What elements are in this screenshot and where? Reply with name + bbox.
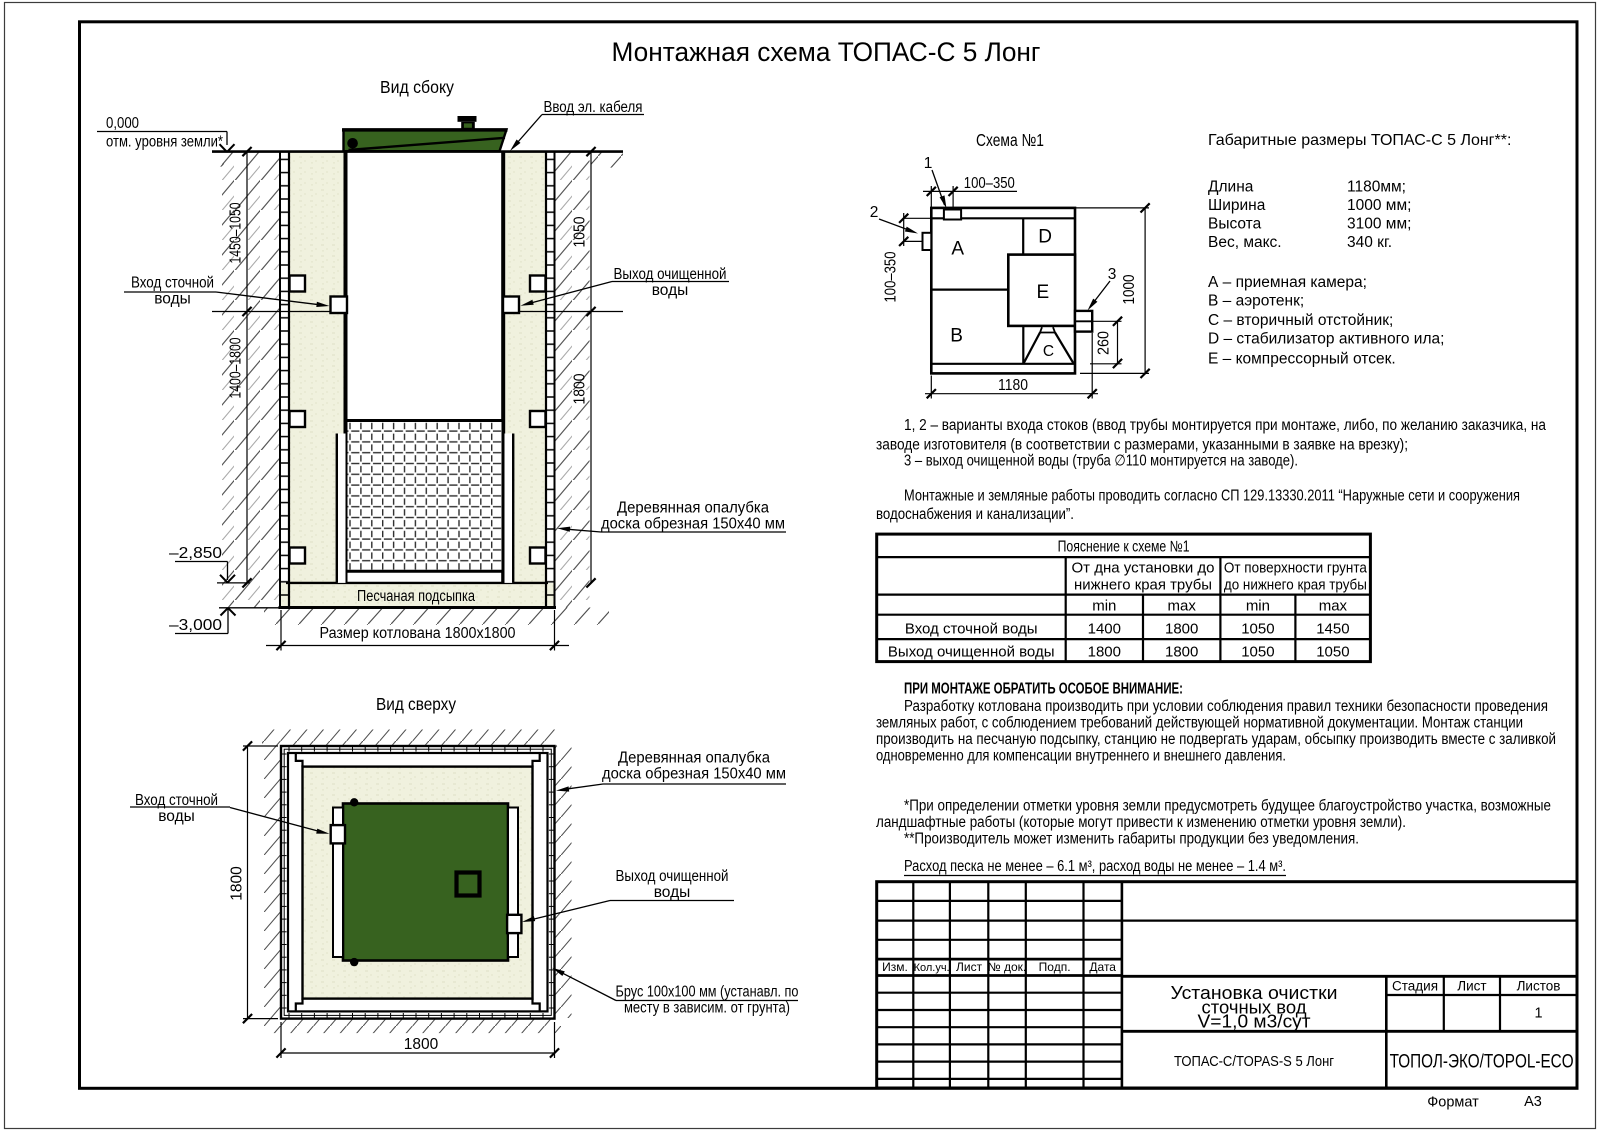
svg-text:воды: воды	[652, 282, 689, 299]
svg-text:Вход сточной воды: Вход сточной воды	[905, 621, 1038, 638]
svg-text:1: 1	[924, 155, 933, 172]
svg-text:В – аэротенк;: В – аэротенк;	[1208, 293, 1304, 310]
svg-text:1, 2 – варианты входа стоков: 1, 2 – варианты входа стоков (ввод трубы…	[904, 417, 1546, 434]
svg-text:1450–1050: 1450–1050	[228, 202, 245, 263]
svg-text:воды: воды	[158, 808, 195, 825]
svg-text:*При определении отметки уровн: *При определении отметки уровня земли пр…	[904, 798, 1551, 815]
svg-text:1000: 1000	[1121, 274, 1138, 304]
svg-text:Лист: Лист	[956, 960, 983, 974]
svg-text:доска обрезная 150x40 мм: доска обрезная 150x40 мм	[601, 516, 785, 533]
svg-text:–2,850: –2,850	[169, 545, 222, 562]
svg-text:Разработку котлована производи: Разработку котлована производить при усл…	[904, 698, 1548, 715]
svg-text:Песчаная подсыпка: Песчаная подсыпка	[357, 588, 475, 605]
svg-text:A: A	[951, 239, 964, 260]
svg-text:2: 2	[870, 204, 879, 221]
svg-text:до нижнего края трубы: до нижнего края трубы	[1224, 578, 1367, 594]
svg-text:1800: 1800	[1165, 621, 1198, 638]
svg-text:1800: 1800	[229, 866, 246, 901]
svg-text:1180мм;: 1180мм;	[1347, 179, 1406, 196]
svg-text:**Производитель может изменить: **Производитель может изменить габариты …	[904, 831, 1359, 848]
svg-text:1800: 1800	[1088, 644, 1121, 661]
svg-text:C: C	[1043, 343, 1054, 360]
svg-text:Габаритные размеры ТОПАС-С 5 Л: Габаритные размеры ТОПАС-С 5 Лонг**:	[1208, 132, 1511, 149]
svg-text:E: E	[1036, 282, 1049, 303]
svg-text:Монтажные и земляные работы пр: Монтажные и земляные работы проводить со…	[904, 488, 1520, 505]
svg-text:Изм.: Изм.	[882, 960, 908, 974]
svg-text:воды: воды	[154, 291, 191, 308]
svg-text:Деревянная опалубка: Деревянная опалубка	[618, 750, 770, 767]
svg-text:Кол.уч.: Кол.уч.	[914, 962, 950, 974]
svg-text:Вход сточной: Вход сточной	[131, 275, 214, 292]
svg-text:Пояснение к схеме №1: Пояснение к схеме №1	[1058, 539, 1190, 556]
svg-text:1180: 1180	[998, 377, 1028, 394]
svg-text:max: max	[1319, 598, 1348, 615]
svg-text:отм. уровня земли*: отм. уровня земли*	[106, 134, 223, 151]
svg-text:340 кг.: 340 кг.	[1347, 234, 1392, 251]
svg-text:Длина: Длина	[1208, 179, 1254, 196]
svg-text:заводе изготовителя (в соответ: заводе изготовителя (в соответствии с ра…	[876, 437, 1408, 454]
svg-text:1000 мм;: 1000 мм;	[1347, 197, 1411, 214]
svg-text:водоснабжения и канализации”.: водоснабжения и канализации”.	[876, 506, 1074, 523]
svg-text:100–350: 100–350	[883, 251, 900, 302]
svg-text:260: 260	[1096, 331, 1113, 355]
svg-text:Вид сверху: Вид сверху	[376, 694, 456, 714]
svg-text:одновременно для компенсации в: одновременно для компенсации внутреннего…	[876, 748, 1286, 765]
svg-text:100–350: 100–350	[964, 175, 1015, 192]
svg-text:Выход очищенной воды: Выход очищенной воды	[888, 644, 1055, 661]
svg-text:1800: 1800	[1165, 644, 1198, 661]
svg-text:А3: А3	[1524, 1094, 1542, 1110]
svg-text:Схема №1: Схема №1	[976, 130, 1044, 150]
svg-text:Листов: Листов	[1517, 979, 1561, 994]
svg-text:Е – компрессорный отсек.: Е – компрессорный отсек.	[1208, 351, 1396, 368]
svg-text:3 – выход очищенной воды (труб: 3 – выход очищенной воды (труба ∅110 мон…	[904, 453, 1298, 470]
svg-text:1800: 1800	[572, 373, 589, 404]
svg-text:Вес, макс.: Вес, макс.	[1208, 234, 1282, 251]
svg-text:Размер котлована 1800x1800: Размер котлована 1800x1800	[320, 625, 516, 642]
svg-text:B: B	[950, 326, 963, 347]
svg-text:месту в зависим. от грунта): месту в зависим. от грунта)	[624, 1000, 790, 1017]
svg-text:V=1,0 м3/сут: V=1,0 м3/сут	[1198, 1012, 1311, 1032]
svg-text:Ширина: Ширина	[1208, 197, 1266, 214]
svg-text:Деревянная опалубка: Деревянная опалубка	[617, 500, 769, 517]
svg-text:С – вторичный отстойник;: С – вторичный отстойник;	[1208, 312, 1393, 329]
svg-text:3: 3	[1108, 266, 1117, 283]
svg-text:Монтажная схема ТОПАС-С 5 Лонг: Монтажная схема ТОПАС-С 5 Лонг	[612, 37, 1041, 67]
svg-text:1: 1	[1534, 1006, 1542, 1022]
svg-text:1050: 1050	[572, 216, 589, 247]
svg-text:max: max	[1168, 598, 1197, 615]
svg-text:Формат: Формат	[1427, 1095, 1479, 1111]
svg-text:№ док.: № док.	[988, 960, 1026, 974]
svg-text:Выход очищенной: Выход очищенной	[616, 868, 729, 885]
svg-text:ландшафтные работы (которые мо: ландшафтные работы (которые могут привес…	[876, 814, 1406, 831]
svg-text:1400: 1400	[1088, 621, 1121, 638]
svg-text:нижнего края трубы: нижнего края трубы	[1074, 578, 1212, 594]
svg-text:Расход песка не менее – 6.1 м³: Расход песка не менее – 6.1 м³, расход в…	[904, 858, 1286, 875]
svg-text:Высота: Высота	[1208, 216, 1262, 233]
svg-text:Подп.: Подп.	[1039, 960, 1071, 974]
svg-text:D – стабилизатор активного ила: D – стабилизатор активного ила;	[1208, 331, 1444, 348]
svg-text:Лист: Лист	[1457, 979, 1486, 994]
svg-text:3100 мм;: 3100 мм;	[1347, 216, 1411, 233]
svg-text:Вид сбоку: Вид сбоку	[380, 77, 454, 97]
svg-text:воды: воды	[654, 884, 691, 901]
svg-text:1800: 1800	[404, 1036, 439, 1053]
svg-text:min: min	[1092, 598, 1116, 615]
svg-text:А – приемная камера;: А – приемная камера;	[1208, 274, 1367, 291]
svg-text:доска обрезная 150x40 мм: доска обрезная 150x40 мм	[602, 766, 786, 783]
svg-text:min: min	[1246, 598, 1270, 615]
svg-text:–3,000: –3,000	[169, 617, 222, 634]
svg-text:1050: 1050	[1241, 621, 1274, 638]
svg-text:От дна установки до: От дна установки до	[1072, 561, 1215, 577]
svg-text:производить на песчаную подсып: производить на песчаную подсыпку, станци…	[876, 731, 1556, 748]
svg-text:1400–1800: 1400–1800	[228, 337, 245, 398]
svg-text:ТОПАС-С/TOPAS-S 5 Лонг: ТОПАС-С/TOPAS-S 5 Лонг	[1174, 1053, 1334, 1070]
svg-text:1050: 1050	[1241, 644, 1274, 661]
svg-text:1050: 1050	[1316, 644, 1349, 661]
svg-text:1450: 1450	[1316, 621, 1349, 638]
svg-text:Ввод эл. кабеля: Ввод эл. кабеля	[544, 99, 643, 116]
svg-text:От поверхности грунта: От поверхности грунта	[1224, 561, 1368, 577]
svg-text:ТОПОЛ-ЭКО/TOPOL-ECO: ТОПОЛ-ЭКО/TOPOL-ECO	[1390, 1051, 1574, 1073]
svg-text:D: D	[1038, 227, 1052, 248]
svg-text:Брус 100x100 мм (устанавл. по: Брус 100x100 мм (устанавл. по	[616, 984, 799, 1001]
svg-text:ПРИ МОНТАЖЕ ОБРАТИТЬ ОСОБОЕ ВН: ПРИ МОНТАЖЕ ОБРАТИТЬ ОСОБОЕ ВНИМАНИЕ:	[904, 681, 1183, 698]
svg-text:земляных работ, с соблюдением: земляных работ, с соблюдением требований…	[876, 715, 1523, 732]
svg-text:Выход очищенной: Выход очищенной	[614, 266, 727, 283]
svg-text:0,000: 0,000	[106, 115, 139, 132]
svg-text:Дата: Дата	[1089, 960, 1116, 974]
svg-text:Стадия: Стадия	[1392, 979, 1438, 994]
